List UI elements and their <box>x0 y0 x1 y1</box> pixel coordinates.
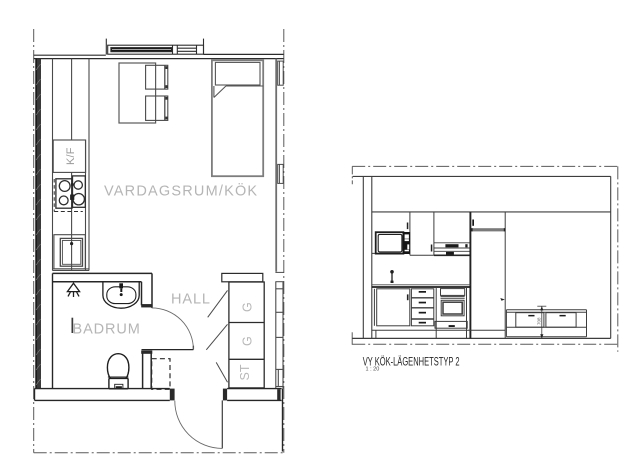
svg-text:HALL: HALL <box>171 292 211 308</box>
svg-text:VARDAGSRUM/KÖK: VARDAGSRUM/KÖK <box>104 182 258 200</box>
svg-text:1 : 20: 1 : 20 <box>366 367 380 373</box>
svg-text:708: 708 <box>537 317 542 325</box>
svg-text:G: G <box>241 302 255 312</box>
svg-text:K/F: K/F <box>65 147 77 165</box>
svg-text:ST: ST <box>238 364 252 380</box>
svg-text:G: G <box>241 336 255 346</box>
svg-text:BADRUM: BADRUM <box>73 322 141 338</box>
